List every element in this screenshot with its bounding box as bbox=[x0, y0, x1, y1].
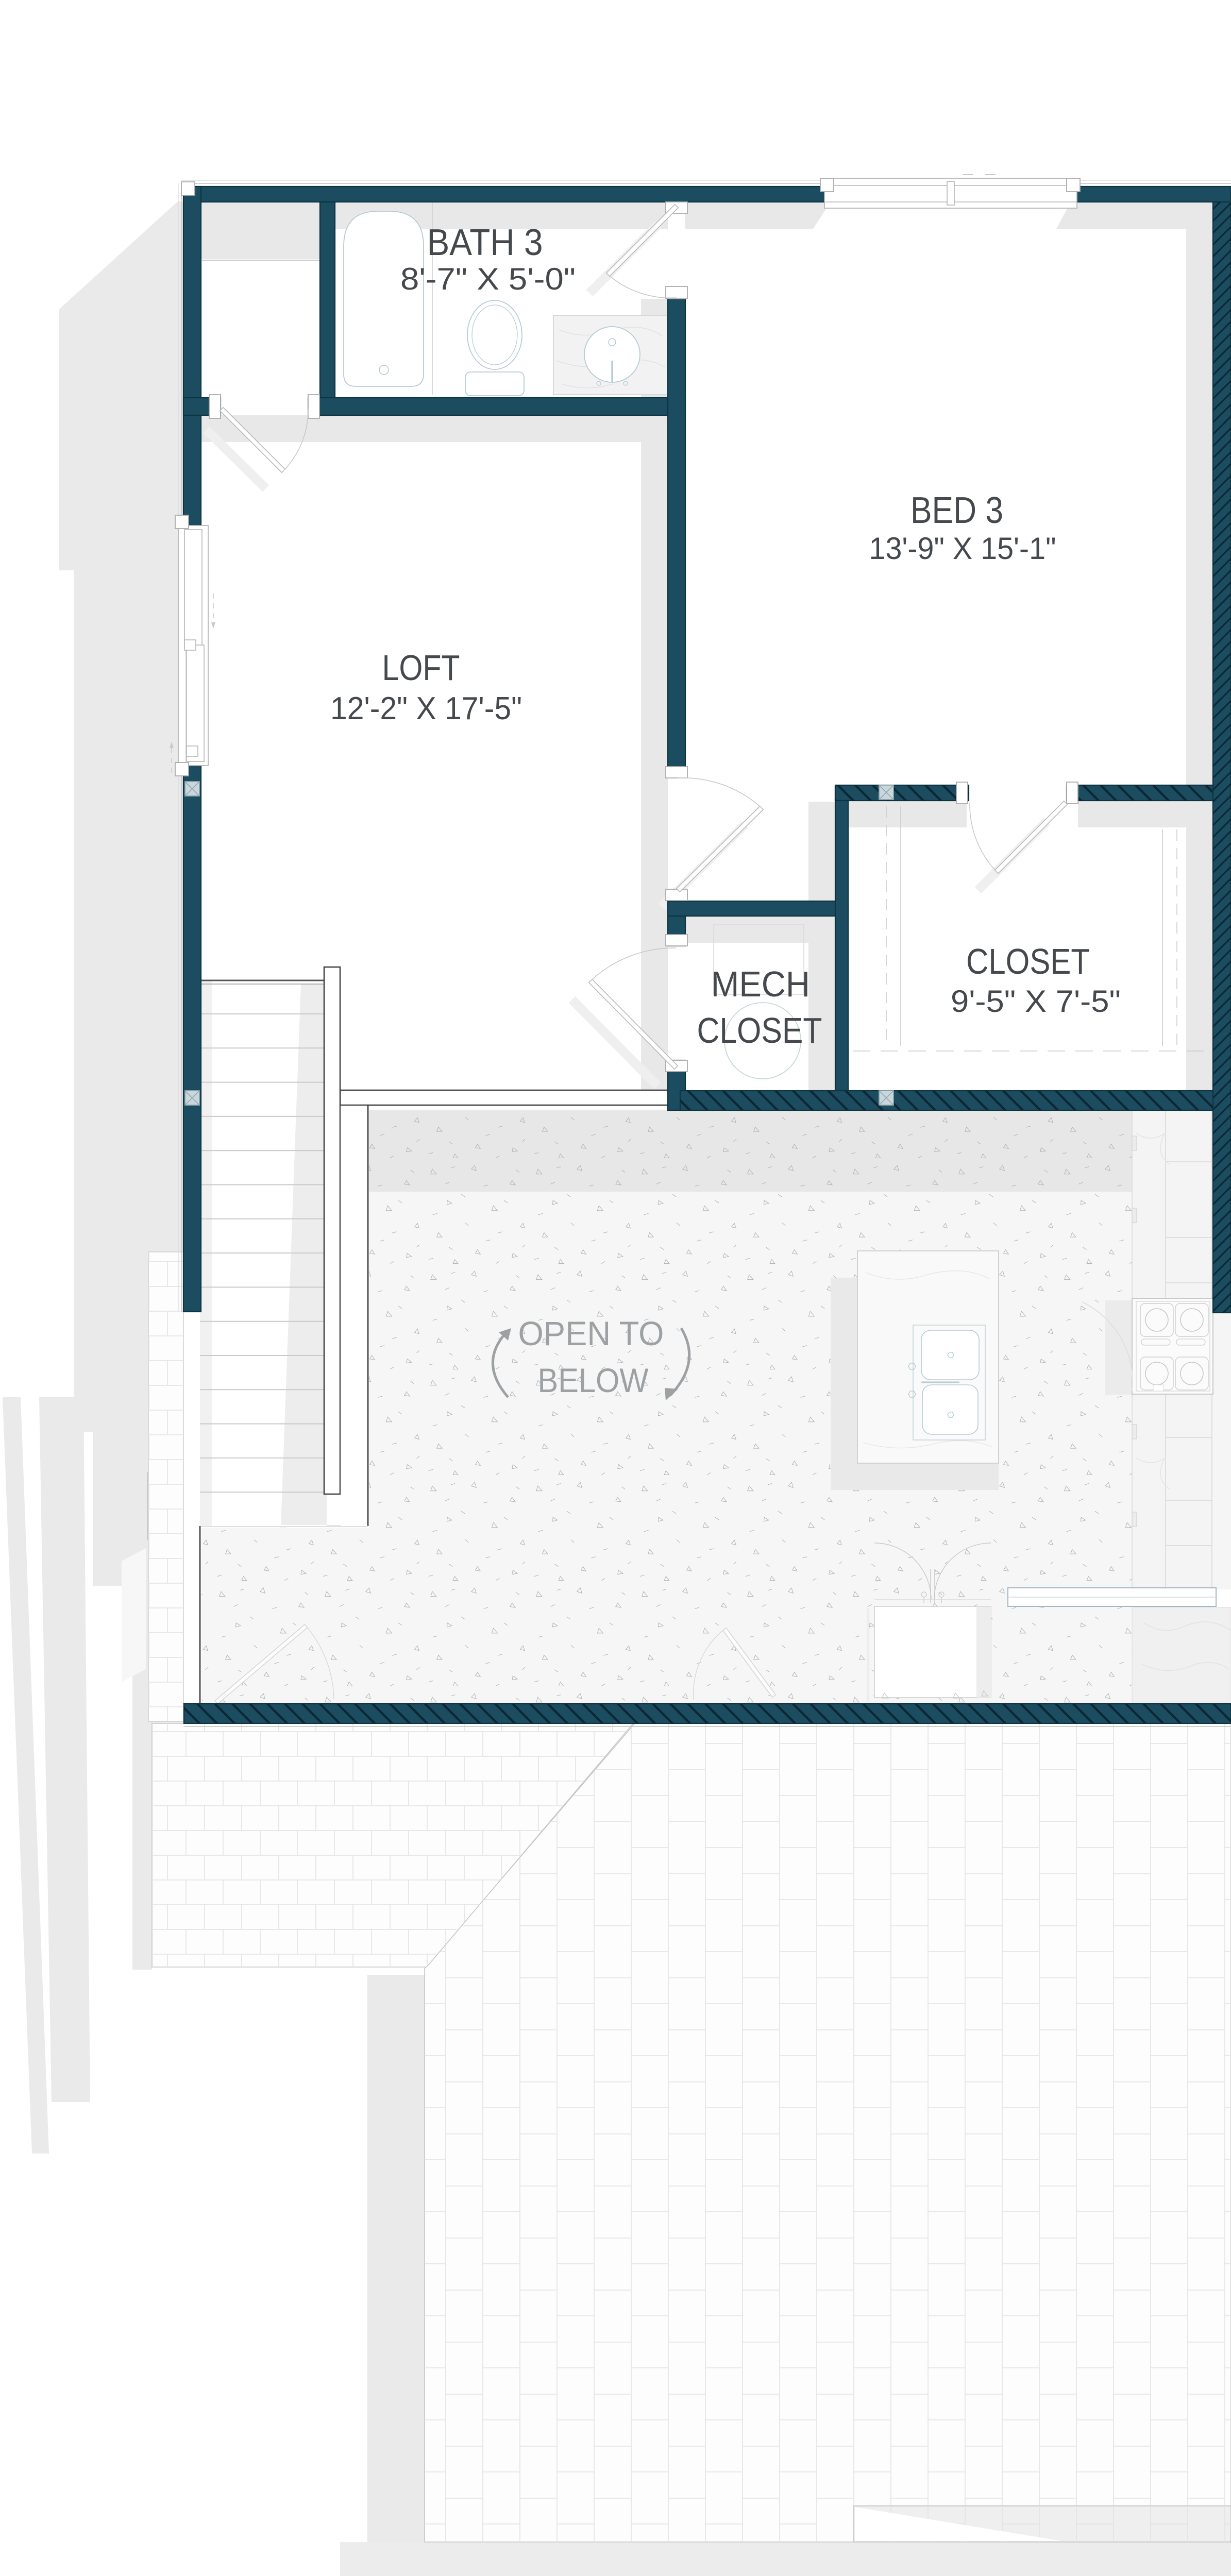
svg-text:13'-9" X 15'-1": 13'-9" X 15'-1" bbox=[869, 531, 1056, 566]
svg-text:9'-5" X 7'-5": 9'-5" X 7'-5" bbox=[951, 984, 1121, 1019]
svg-text:BED 3: BED 3 bbox=[910, 490, 1003, 531]
svg-text:LOFT: LOFT bbox=[382, 648, 460, 688]
svg-text:CLOSET: CLOSET bbox=[966, 941, 1090, 981]
svg-text:MECH: MECH bbox=[711, 964, 810, 1004]
svg-text:OPEN TO: OPEN TO bbox=[518, 1314, 664, 1352]
svg-text:BELOW: BELOW bbox=[538, 1361, 649, 1399]
svg-text:8'-7" X 5'-0": 8'-7" X 5'-0" bbox=[400, 262, 576, 296]
svg-text:CLOSET: CLOSET bbox=[697, 1010, 822, 1050]
svg-text:BATH 3: BATH 3 bbox=[427, 222, 543, 263]
svg-text:12'-2" X 17'-5": 12'-2" X 17'-5" bbox=[330, 691, 522, 726]
